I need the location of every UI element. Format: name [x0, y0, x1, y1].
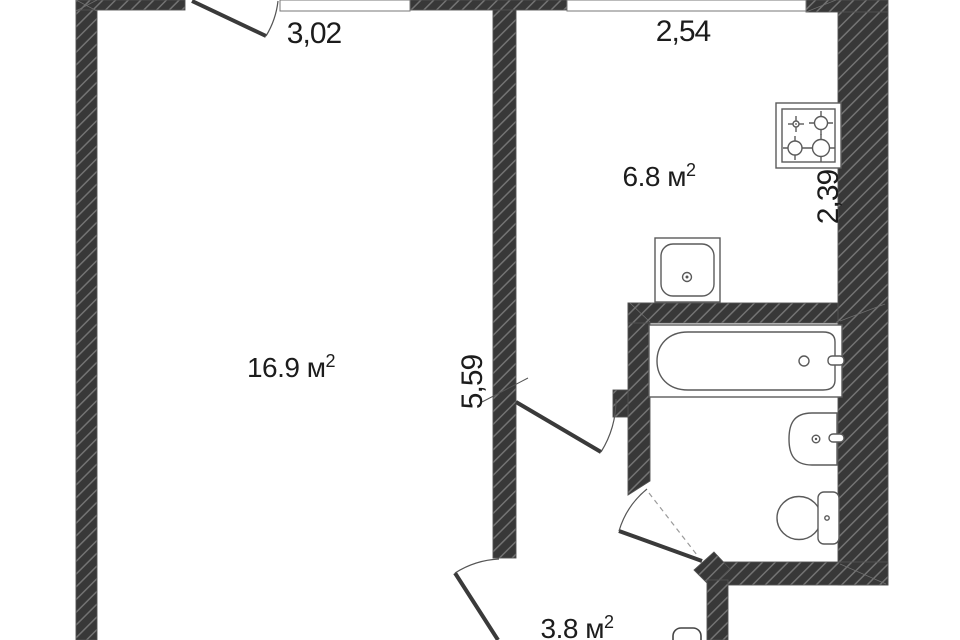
- toilet-bowl: [777, 497, 821, 540]
- dimension-kitchen-width: 2,54: [656, 15, 711, 48]
- dimension-kitchen-depth: 2,39: [812, 169, 845, 224]
- window-living-room: [280, 0, 410, 11]
- apartment-floor-plan: 16.9 м2 6.8 м2 3.8 м2 3,02 2,54 2,39 5,5…: [0, 0, 960, 640]
- entrance-door-partial: [673, 628, 701, 640]
- dimension-living-width: 3,02: [287, 17, 342, 50]
- kitchen-sink-icon: [655, 238, 720, 302]
- washbasin-faucet: [829, 434, 844, 442]
- wall-central: [493, 10, 516, 558]
- wall-exterior-right: [838, 12, 888, 585]
- wall-entry-right: [707, 580, 728, 640]
- hallway-area-label: 3.8 м2: [541, 612, 614, 640]
- kitchen-area-label: 6.8 м2: [623, 160, 696, 192]
- window-kitchen: [567, 0, 806, 11]
- wall-exterior-left: [76, 0, 97, 640]
- dimension-living-depth: 5,59: [456, 354, 489, 409]
- wall-top-middle: [410, 0, 567, 10]
- wall-bathroom-left: [628, 303, 650, 495]
- toilet-icon: [777, 492, 839, 544]
- washbasin-icon: [789, 413, 844, 465]
- living-room-area-label: 16.9 м2: [247, 351, 336, 383]
- bathtub-faucet: [828, 356, 844, 365]
- wall-top-right: [806, 0, 888, 12]
- bathtub-icon: [649, 325, 844, 397]
- stove-icon: [776, 103, 841, 168]
- floor-plan-canvas: 16.9 м2 6.8 м2 3.8 м2 3,02 2,54 2,39 5,5…: [0, 0, 960, 640]
